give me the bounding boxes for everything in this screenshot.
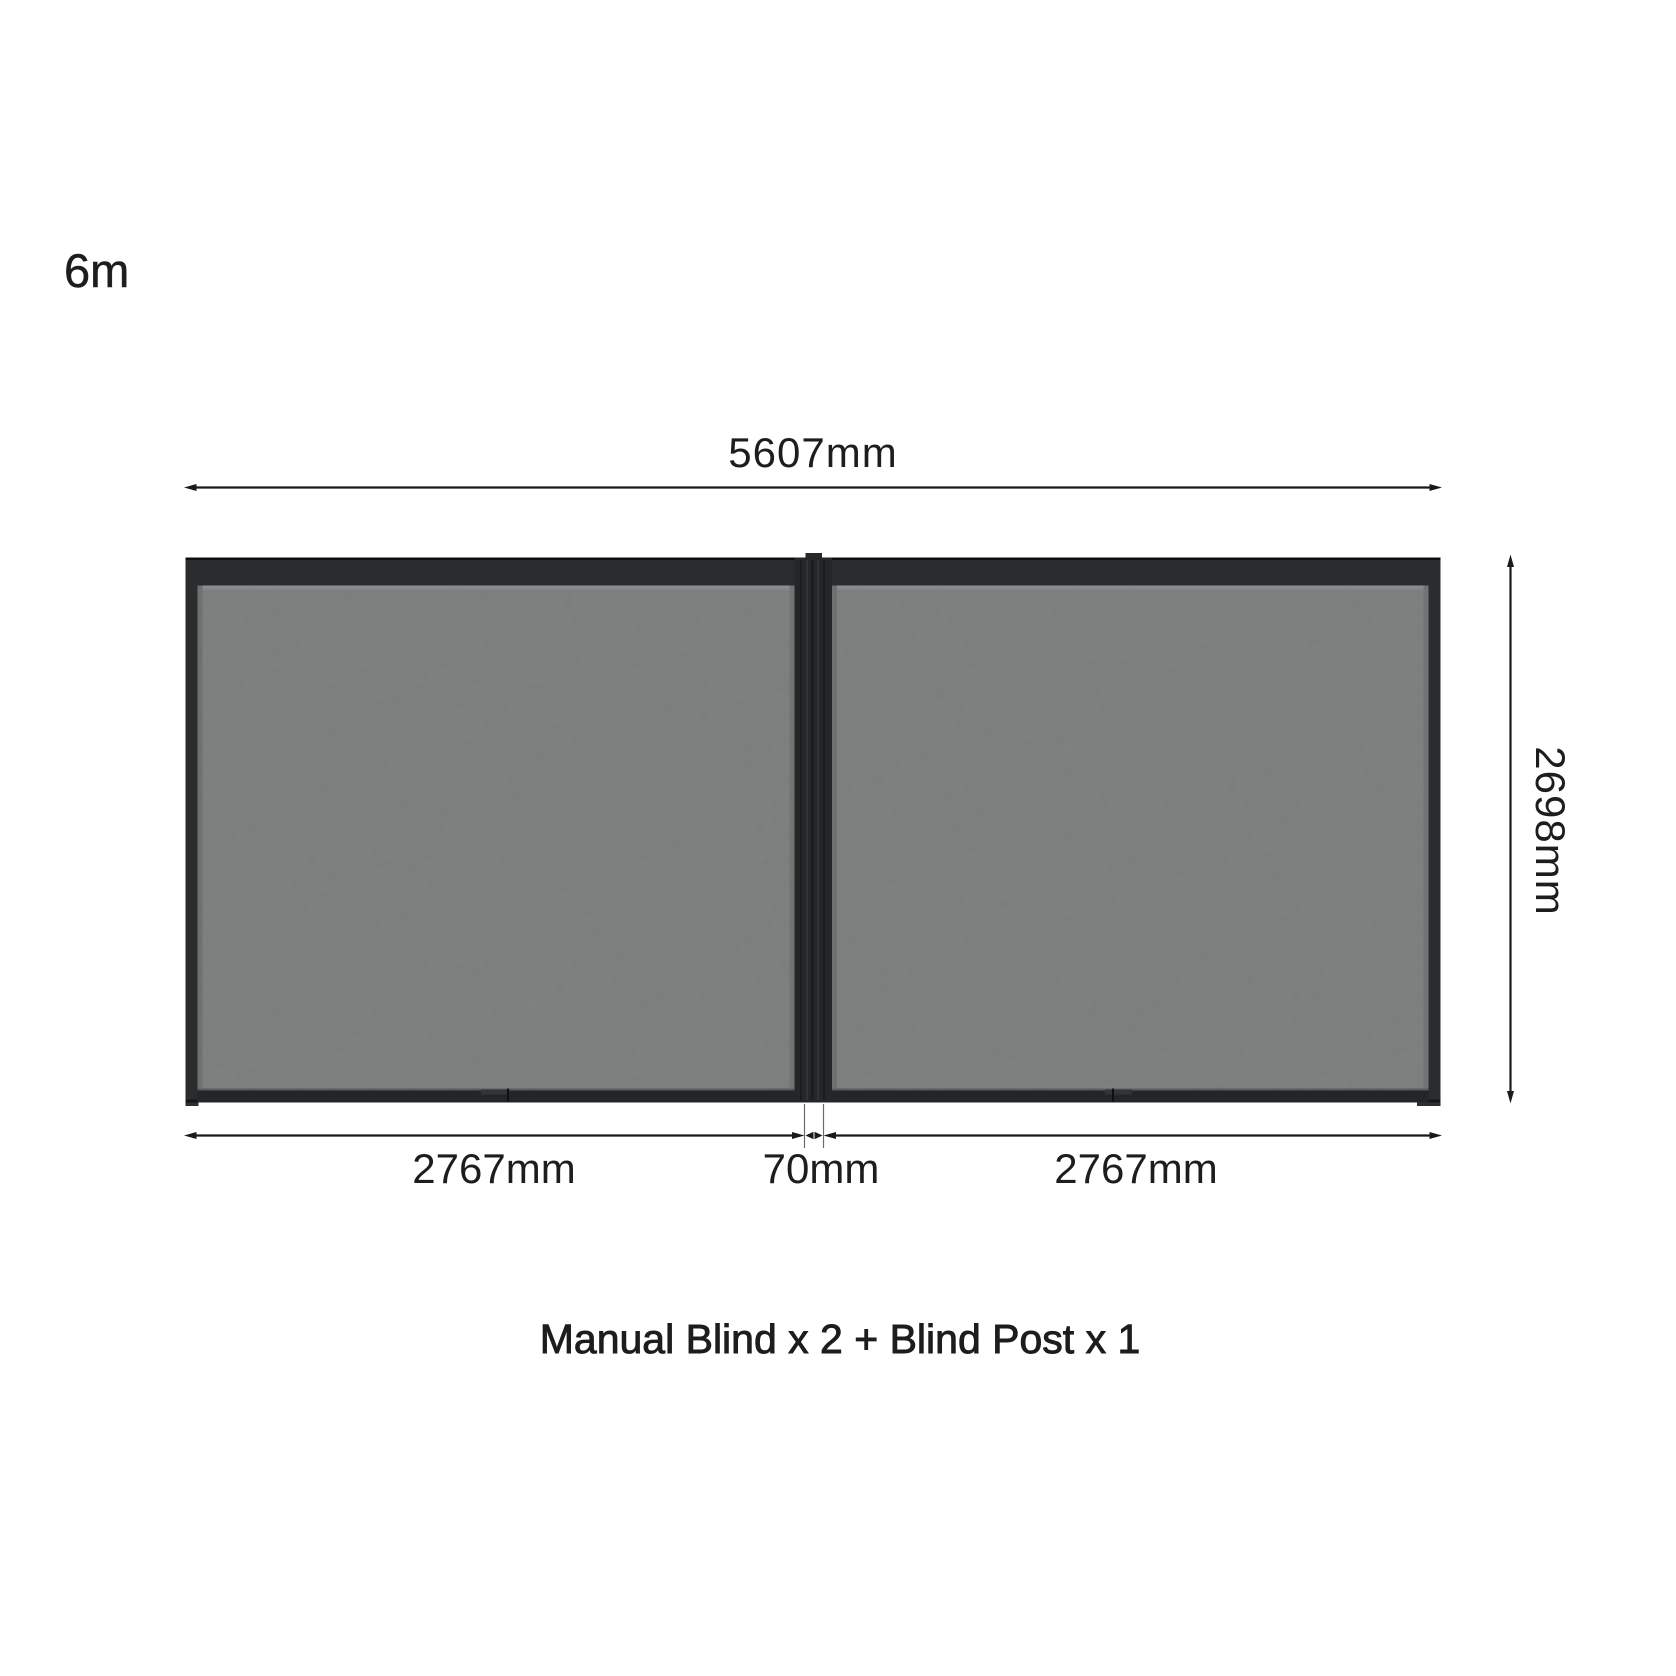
svg-text:6m: 6m bbox=[64, 244, 129, 297]
svg-text:2767mm: 2767mm bbox=[412, 1145, 575, 1192]
svg-text:5607mm: 5607mm bbox=[728, 429, 897, 476]
svg-text:Manual Blind x 2 + Blind Post: Manual Blind x 2 + Blind Post x 1 bbox=[540, 1316, 1141, 1362]
svg-text:70mm: 70mm bbox=[763, 1145, 880, 1192]
svg-text:2698mm: 2698mm bbox=[1527, 746, 1574, 915]
svg-text:2767mm: 2767mm bbox=[1054, 1145, 1217, 1192]
